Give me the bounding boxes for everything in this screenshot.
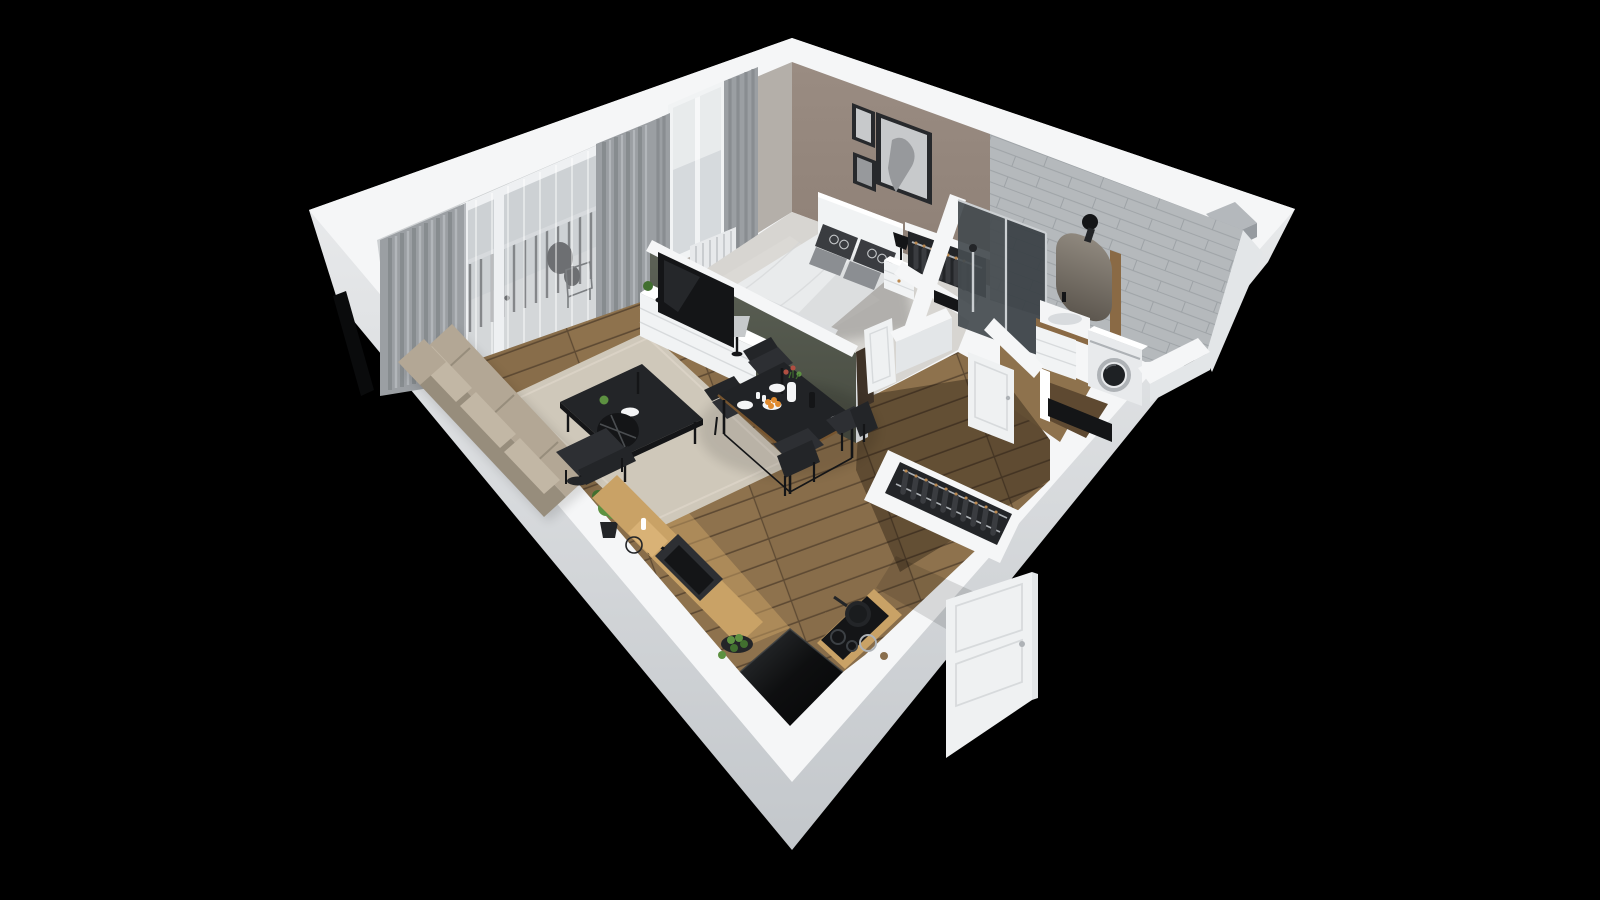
bed-drawer-line (714, 310, 806, 358)
nightstand-top (884, 256, 920, 272)
washer-body (1088, 330, 1142, 406)
dining-table-legs (724, 368, 852, 494)
tv-wall-face (650, 247, 856, 443)
bed-shadow (704, 270, 915, 360)
lamp-drum-shade (597, 413, 639, 449)
sideboard-front (640, 293, 756, 391)
floorplan-render (0, 0, 1600, 900)
plate-2 (769, 384, 785, 393)
dining-table-top (718, 362, 858, 456)
sideboard-bowl (656, 297, 669, 303)
entrance-door-inset-top (956, 584, 1022, 652)
sofa (398, 324, 600, 522)
sink-basin (664, 545, 714, 595)
drawer-knob-1 (897, 270, 900, 273)
tv-sideboard (640, 281, 768, 391)
salt-shaker (756, 392, 760, 399)
pan-inner (849, 605, 867, 623)
armchair-legs (566, 458, 622, 484)
lamp-stem (580, 442, 602, 478)
rug-base (505, 331, 793, 532)
basin-cabinet (1036, 326, 1076, 380)
open-closet (864, 450, 1024, 563)
hall-black-mirror (934, 290, 958, 312)
nightstand (884, 232, 921, 300)
wardrobe-rail (912, 242, 982, 268)
main-wood-floor (473, 298, 1050, 672)
nightstand-front (884, 260, 914, 300)
walk-in-shower (958, 200, 1046, 358)
bathroom-door-panel (968, 352, 1014, 444)
plate-1 (737, 401, 753, 410)
bathroom-door-jamb (1040, 368, 1050, 422)
washer-top (1088, 326, 1148, 350)
pillow-pattern-rings (830, 235, 887, 263)
vent-shaft (1206, 202, 1257, 250)
sideboard-books (686, 316, 702, 328)
tv-reflection (664, 260, 700, 312)
frame-middle (494, 187, 504, 358)
bedroom-window-glass (673, 87, 721, 257)
art-small-print-1 (856, 108, 871, 143)
duvet (718, 234, 903, 345)
pan-handle (834, 597, 847, 606)
drawer-knob-2 (897, 279, 900, 282)
bedroom-hall-wall (856, 290, 958, 410)
tv-wall-top-band (646, 240, 858, 357)
balcony-glass (462, 138, 616, 367)
living-light-patch (520, 344, 762, 508)
closet-clothes-row1 (903, 474, 996, 533)
bowl-of-oranges (765, 397, 781, 409)
hallway-shadow (856, 374, 1050, 572)
chair-back (777, 440, 820, 478)
burner-3 (847, 641, 857, 651)
low-wall-face (1150, 352, 1210, 402)
sofa-back (404, 348, 566, 517)
curtain-right-highlights (610, 125, 646, 337)
chair-seat (748, 347, 793, 379)
headboard (818, 192, 903, 266)
frame-right (610, 136, 618, 315)
curtain-left-highlights (396, 209, 456, 388)
bathroom-doorway-floor (1040, 382, 1108, 438)
wardrobe-niche (908, 228, 986, 298)
leaf-1 (598, 500, 614, 516)
vase-flowers (783, 365, 801, 379)
sofa-back-cushion-2 (460, 392, 516, 448)
pepper-shaker (762, 395, 766, 402)
sofa-back-cushion-3 (504, 438, 560, 494)
exterior-walls (309, 38, 1295, 850)
coffee-table-legs (568, 372, 695, 482)
bedroom-carpet (658, 212, 985, 402)
curtain-right-folds (604, 127, 640, 338)
pillow-pattern-1 (815, 224, 858, 260)
arc-floor-lamp (567, 413, 639, 486)
leaf-4 (607, 509, 617, 519)
hall-wall-top-band (890, 308, 952, 342)
apple-3 (740, 640, 748, 648)
bathroom-low-wall (1138, 338, 1210, 402)
apartment-3d-scene (0, 0, 1600, 900)
bedroom-window-mullion (695, 96, 700, 249)
vent-shaft-opening (1206, 202, 1257, 236)
radiator-fins (696, 231, 731, 279)
wood-slat-panel (1110, 250, 1121, 342)
apple-5 (718, 651, 726, 659)
bedroom-window-wall (652, 62, 792, 298)
cutting-board (628, 517, 668, 557)
kitchen-sink (647, 534, 723, 601)
leaf-3 (592, 490, 604, 502)
bathroom-hall-wall-band (984, 318, 1044, 378)
wall-art (852, 103, 932, 205)
closet-hanger-hooks (906, 471, 996, 512)
chair-legs (842, 424, 864, 451)
closet-interior (885, 462, 1012, 545)
hallway (864, 398, 1112, 758)
chair-seat (826, 406, 868, 435)
burner-1 (831, 630, 845, 644)
radiator (690, 227, 736, 282)
tableware (737, 382, 847, 443)
flower-stems (789, 370, 799, 379)
plant-pot (600, 522, 618, 538)
sconce-lamp (1082, 214, 1098, 230)
nightstand-drawer-lines (884, 270, 914, 291)
shower-glass-edges (958, 200, 1046, 358)
bathroom (958, 200, 1210, 444)
art-large-print (881, 118, 927, 199)
coffee-table-top (560, 364, 703, 457)
basin-bowl-shadow (1048, 313, 1082, 325)
sideboard-top (640, 285, 768, 348)
pot-lid (860, 635, 876, 651)
tv-wall-end-cap (856, 347, 868, 443)
pillow-pattern-2 (853, 239, 896, 275)
cooktop (821, 596, 889, 660)
chair-back (743, 337, 779, 363)
balcony-plant (547, 242, 580, 286)
door-handle (504, 295, 509, 300)
art-small-frame-1 (852, 103, 875, 148)
shower-glass-front (1006, 218, 1046, 358)
counter-sw (592, 475, 763, 645)
floor-plant (592, 490, 622, 538)
chair-legs (785, 462, 814, 496)
cooktop-surface (821, 596, 889, 660)
counter-se (817, 589, 902, 669)
exterior-window-sliver (333, 291, 374, 396)
dining-table-frame (724, 434, 852, 492)
chair-back (704, 376, 742, 401)
bedside-lamp-shade (893, 232, 910, 250)
sink-faucet (650, 546, 664, 551)
dining-table-edge (718, 395, 858, 456)
fruit-bowl (763, 400, 782, 410)
basin-faucet (1062, 292, 1066, 302)
chair-legs (715, 404, 752, 435)
island-edge-highlight (740, 629, 843, 672)
basin-counter (1036, 318, 1096, 348)
wardrobe-top-trim (905, 222, 990, 260)
bedroom-curtain-left (652, 113, 670, 280)
balcony-floor (466, 240, 612, 366)
tiles (990, 134, 1243, 362)
bathroom-door-inset (975, 362, 1007, 430)
corner-return-wall (1205, 230, 1263, 372)
orange-2 (771, 397, 777, 403)
closet-walls-outer (864, 450, 1024, 563)
area-rug (505, 331, 793, 532)
curtain-right-panel (596, 121, 652, 344)
duvet-shade (782, 250, 903, 345)
living-room-window-wall (377, 121, 652, 396)
rug-inner-border (517, 338, 781, 522)
bathroom-tile-wall (990, 134, 1263, 372)
kitchen (592, 475, 902, 726)
table-tray (621, 408, 639, 417)
chair-back (850, 401, 878, 437)
bedroom-curtain-folds (658, 69, 753, 277)
chair-seat (712, 388, 757, 419)
plate-dark (721, 635, 753, 653)
sofa-cushion-gaps (446, 348, 558, 464)
washer-door-highlight (1106, 365, 1116, 369)
entrance-door-handle (1019, 641, 1025, 647)
balcony-railing-top (468, 204, 606, 262)
tv-partition-wall (646, 240, 868, 443)
washing-machine (1088, 326, 1148, 406)
tv-screen (658, 252, 734, 348)
burner-2 (851, 615, 862, 626)
coffee-table (560, 364, 703, 482)
wire-chair (566, 262, 592, 308)
bathroom-mirror (1056, 214, 1121, 342)
mirror-glass (1056, 226, 1112, 328)
plant-silhouette (547, 242, 573, 274)
low-wall-top (1138, 338, 1210, 384)
wall-top-faces (309, 38, 1295, 782)
dining-chair-south (773, 428, 824, 496)
basin (1040, 300, 1090, 340)
flower-1 (783, 369, 788, 374)
sofa-back-cushion-1 (416, 346, 472, 402)
hanger-hooks (916, 243, 972, 264)
shower-glass-back (958, 200, 1006, 344)
cabinet-drawer-lines (1036, 339, 1076, 366)
washer-panel (1090, 341, 1140, 359)
pillow-gray-1 (809, 247, 847, 276)
duvet-fold (732, 288, 838, 347)
plate-4 (830, 415, 847, 424)
apple-plate (718, 634, 753, 659)
floors (473, 212, 1092, 672)
art-large-figure (888, 138, 915, 192)
headboard-top-edge (818, 192, 903, 229)
orange-3 (775, 401, 781, 407)
armchair-seat (556, 428, 629, 476)
sofa-shadow (404, 330, 600, 522)
plate-3 (798, 433, 815, 442)
art-small-print-2 (857, 157, 872, 187)
curtain-sheer (464, 142, 604, 390)
curtain-sheer-folds (476, 151, 588, 380)
taupe-wall (792, 62, 990, 286)
carpet-light-patch (700, 236, 880, 354)
dining-chair-north (743, 337, 793, 379)
oil-bottle (641, 518, 646, 530)
bathroom-door-open (968, 352, 1014, 444)
living-room (398, 252, 768, 538)
sofa-seat (426, 324, 592, 497)
hanging-clothes (916, 247, 972, 291)
vent-shaft-inner-face (1228, 223, 1257, 250)
washbasin-unit (1036, 292, 1096, 380)
bedroom-door-inset (870, 327, 890, 383)
curtain-left-folds (390, 212, 450, 390)
dining-chair-west (704, 376, 757, 435)
lamp-drum-spokes (600, 415, 636, 447)
kitchen-island (740, 629, 843, 726)
bedroom-open-wardrobe (905, 222, 990, 298)
coffee-table-edge (560, 402, 621, 463)
apple-4 (730, 644, 738, 652)
sofa-armrest (398, 339, 446, 385)
entrance-door-edge-shade (1032, 572, 1038, 700)
nightstand-plant (911, 245, 921, 255)
bedroom-door-open (864, 318, 896, 394)
washer-door-ring (1099, 360, 1129, 390)
pan (845, 601, 871, 627)
bathroom-door-handle (1006, 396, 1010, 400)
bed-base (712, 296, 810, 368)
bedroom-curtain-right (724, 67, 758, 254)
flower-3 (796, 371, 801, 376)
table-lamp-base (732, 352, 743, 357)
dining-chair-east (826, 401, 878, 451)
sink-rim (655, 534, 723, 601)
apple-2 (735, 634, 743, 642)
black-background (0, 0, 1600, 900)
jar (880, 652, 888, 660)
frame-left (460, 201, 468, 371)
vase (787, 382, 796, 402)
sconce-arm (1084, 227, 1095, 242)
lamp-base (567, 477, 589, 486)
flower-2 (790, 365, 795, 370)
sideboard-drawer-lines (640, 308, 756, 377)
frame-top (460, 136, 618, 214)
entry-mat-shadow (876, 556, 992, 636)
hall-wall-face (896, 318, 952, 374)
dining-area (698, 337, 878, 496)
entrance-door-panel (946, 572, 1032, 758)
kitchen-floor-tint (598, 480, 790, 648)
balcony-railing-bars (470, 207, 602, 332)
bedroom-bathroom-partition (898, 194, 966, 352)
wire-basket (626, 537, 642, 553)
balcony-chair (566, 262, 592, 308)
entrance-door-inset-bottom (956, 640, 1022, 706)
window-glare (673, 87, 721, 170)
doorway-dark-gap (856, 344, 874, 410)
bathroom-floor (1000, 345, 1092, 442)
pillow-gray-2 (843, 261, 881, 290)
television (658, 252, 734, 348)
radiator-body (690, 227, 736, 282)
dining-shadow (698, 382, 878, 478)
plant-silhouette-2 (564, 266, 580, 286)
living-curtains (380, 121, 652, 396)
island-top (740, 629, 843, 726)
bed-pillows (809, 224, 896, 290)
table-lamp-shade (724, 316, 750, 337)
bedroom-window-frame (668, 80, 726, 266)
orange-1 (765, 399, 771, 405)
duvet-creases (738, 242, 836, 316)
orange-4 (768, 403, 774, 409)
coffee-table-edge2 (621, 419, 703, 463)
curtain-left-panel (380, 203, 466, 396)
art-small-frame-2 (853, 152, 876, 192)
curtain-wall-base (377, 121, 652, 388)
shower-head (969, 244, 977, 252)
washer-door-glass (1103, 364, 1125, 386)
closet-rails (896, 470, 1007, 532)
wardrobe-lower-trim (894, 262, 998, 334)
entrance-door (946, 572, 1038, 758)
apple-1 (727, 636, 735, 644)
leaf-2 (610, 494, 622, 506)
chair-seat (773, 428, 824, 462)
faucet-base (647, 549, 652, 554)
lounge-armchair (556, 428, 636, 485)
entry-glass-pane (1048, 398, 1112, 442)
sideboard-plant (643, 281, 653, 291)
table-plant (600, 396, 609, 405)
art-large-frame (876, 112, 932, 205)
bedroom-accent-wall (792, 62, 990, 286)
bedroom-wall-base (652, 62, 792, 298)
pepper-mill (809, 392, 815, 408)
bedroom (704, 192, 990, 368)
balcony-door-frame (460, 136, 618, 371)
armchair-back (578, 446, 636, 485)
